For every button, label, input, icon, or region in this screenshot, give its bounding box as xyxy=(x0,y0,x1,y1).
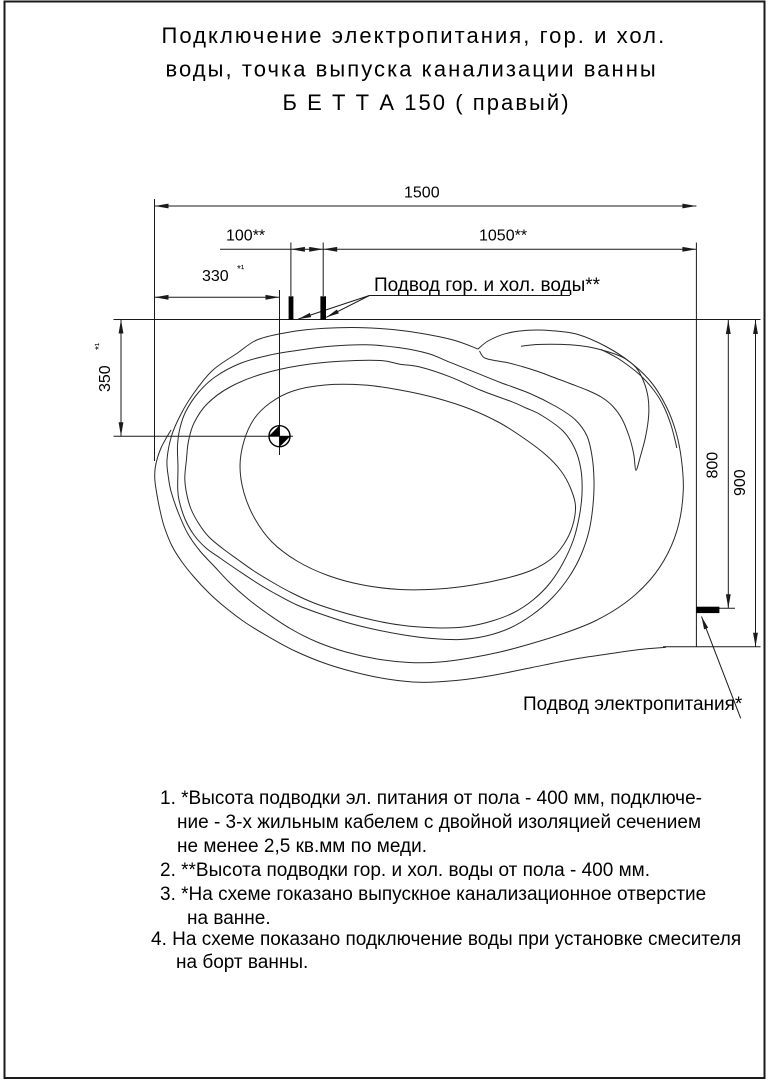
svg-text:1050**: 1050** xyxy=(479,228,527,245)
svg-text:на борт ванны.: на борт ванны. xyxy=(176,952,308,973)
svg-text:не менее 2,5 кв.мм по меди.: не менее 2,5 кв.мм по меди. xyxy=(177,836,427,857)
svg-text:4. На схеме показано подключен: 4. На схеме показано подключение воды пр… xyxy=(151,929,741,950)
svg-text:Б Е Т Т А 150 ( правый): Б Е Т Т А 150 ( правый) xyxy=(283,90,571,115)
svg-text:Подвод гор. и хол. воды**: Подвод гор. и хол. воды** xyxy=(374,275,601,296)
svg-text:3. *На схеме гоказано выпускно: 3. *На схеме гоказано выпускное канализа… xyxy=(160,884,706,905)
svg-text:Подключение электропитания, го: Подключение электропитания, гор. и хол. xyxy=(162,23,667,48)
svg-text:ние - 3-х жильным кабелем с дв: ние - 3-х жильным кабелем с двойной изол… xyxy=(177,812,701,833)
svg-text:1. *Высота подводки эл. питани: 1. *Высота подводки эл. питания от пола … xyxy=(160,788,702,809)
svg-text:350: 350 xyxy=(97,365,114,392)
svg-text:на ванне.: на ванне. xyxy=(187,908,271,929)
svg-text:*¹: *¹ xyxy=(94,342,105,350)
svg-text:900: 900 xyxy=(732,469,749,496)
svg-text:Подвод электропитания*: Подвод электропитания* xyxy=(523,694,743,715)
svg-text:воды, точка выпуска канализац: воды, точка выпуска канализации ванны xyxy=(166,57,658,82)
svg-text:*¹: *¹ xyxy=(237,264,245,275)
svg-text:800: 800 xyxy=(705,452,722,479)
svg-text:100**: 100** xyxy=(226,228,265,245)
svg-text:1500: 1500 xyxy=(404,185,440,202)
svg-text:330: 330 xyxy=(202,268,229,285)
svg-text:2. **Высота подводки гор. и хо: 2. **Высота подводки гор. и хол. воды от… xyxy=(160,860,650,881)
